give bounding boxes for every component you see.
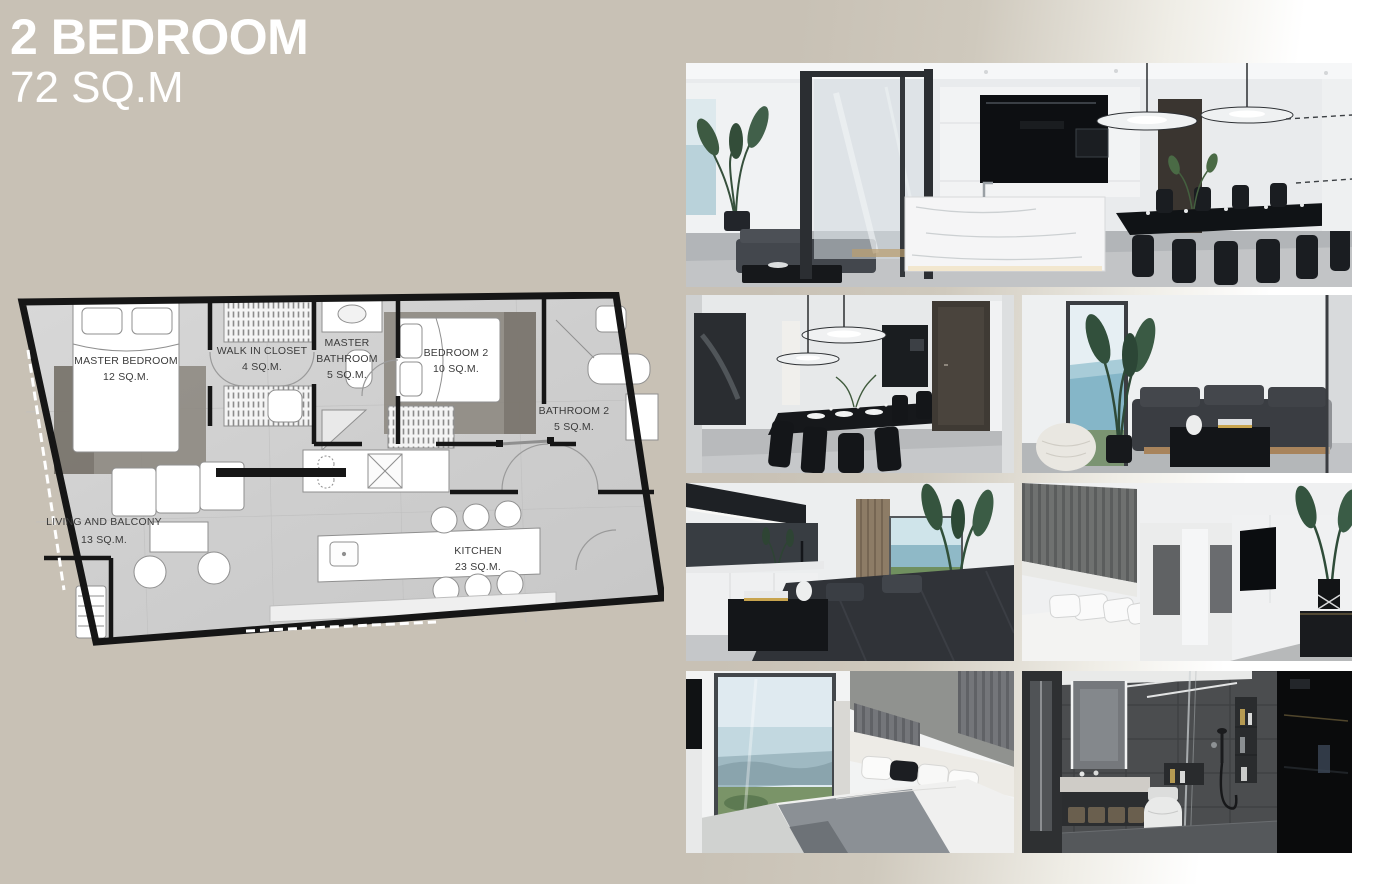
photo-kitchen-dining bbox=[686, 63, 1352, 287]
hood bbox=[1020, 121, 1064, 129]
coffee-table bbox=[742, 265, 842, 283]
room-area: 10 SQ.M. bbox=[433, 363, 479, 375]
render-kitchen-dining bbox=[686, 63, 1352, 287]
render-living-balcony bbox=[686, 483, 1014, 661]
room-area: 4 SQ.M. bbox=[242, 361, 282, 373]
room-label: LIVING AND BALCONY bbox=[46, 516, 162, 528]
photo-bedroom-tv bbox=[1022, 483, 1352, 661]
stool-2 bbox=[198, 552, 230, 584]
photo-dining-area bbox=[686, 295, 1014, 473]
kitchen-niche bbox=[882, 325, 928, 387]
room-label: MASTER bbox=[325, 337, 370, 349]
oven bbox=[910, 339, 924, 351]
tray bbox=[768, 262, 788, 268]
floor-plan-drawing: MASTER BEDROOM 12 SQ.M. WALK IN CLOSET 4… bbox=[16, 292, 664, 648]
pouf bbox=[1036, 423, 1096, 471]
column bbox=[1182, 529, 1208, 645]
sofa-cushion bbox=[740, 229, 804, 243]
render-bathroom bbox=[1022, 671, 1352, 853]
tv-wall bbox=[216, 468, 346, 477]
door-1 bbox=[1153, 545, 1180, 615]
room-label: BEDROOM 2 bbox=[424, 347, 489, 359]
books bbox=[1218, 419, 1252, 425]
vase bbox=[796, 581, 812, 601]
room-label: BATHROOM 2 bbox=[539, 405, 610, 417]
floor-plan: MASTER BEDROOM 12 SQ.M. WALK IN CLOSET 4… bbox=[16, 292, 664, 648]
room-area: 23 SQ.M. bbox=[455, 561, 501, 573]
room-label: MASTER BEDROOM bbox=[74, 355, 178, 367]
wardrobe-top bbox=[224, 298, 312, 342]
room-area: 13 SQ.M. bbox=[81, 534, 127, 546]
right-wall bbox=[1322, 79, 1352, 231]
tv bbox=[1240, 527, 1276, 591]
right-edge bbox=[1002, 295, 1014, 473]
room-label-2: BATHROOM bbox=[316, 353, 378, 365]
render-living-sea bbox=[1022, 295, 1352, 473]
bathtub bbox=[588, 354, 650, 384]
console bbox=[1300, 611, 1352, 657]
page-subtitle: 72 SQ.M bbox=[10, 66, 308, 110]
glass-cup bbox=[1080, 772, 1085, 777]
rug-patch-2 bbox=[504, 312, 536, 434]
room-label: KITCHEN bbox=[454, 545, 502, 557]
room-area: 12 SQ.M. bbox=[103, 371, 149, 383]
photo-bedroom-view bbox=[686, 671, 1014, 853]
mirror bbox=[1072, 681, 1126, 769]
photo-bathroom bbox=[1022, 671, 1352, 853]
render-dining-area bbox=[686, 295, 1014, 473]
tv-sliver bbox=[686, 679, 702, 749]
basin bbox=[338, 305, 366, 323]
closet-stool bbox=[268, 390, 302, 422]
cabinet-sliver bbox=[686, 749, 702, 853]
mixer bbox=[1211, 742, 1217, 748]
vanity bbox=[1060, 771, 1150, 827]
room-area: 5 SQ.M. bbox=[327, 369, 367, 381]
bedroom-2-bed bbox=[396, 318, 500, 402]
door bbox=[932, 301, 990, 431]
backsplash bbox=[686, 523, 818, 569]
photo-living-sea-view bbox=[1022, 295, 1352, 473]
title-block: 2 BEDROOM 72 SQ.M bbox=[10, 12, 308, 110]
artwork bbox=[694, 313, 746, 425]
brochure-page: { "page": { "background_color": "#c8c1b5… bbox=[0, 0, 1376, 884]
glass-partition bbox=[1327, 295, 1352, 473]
render-bedroom-view bbox=[686, 671, 1014, 853]
sofa-pillow bbox=[882, 575, 922, 593]
oven bbox=[1076, 129, 1108, 157]
books bbox=[744, 591, 788, 598]
reflection bbox=[1318, 745, 1330, 773]
vase bbox=[1186, 415, 1202, 435]
render-bedroom-tv bbox=[1022, 483, 1352, 661]
black-wardrobe bbox=[1277, 671, 1352, 853]
page-title: 2 BEDROOM bbox=[10, 12, 308, 62]
sofa-pillow-2 bbox=[826, 583, 864, 601]
door-2 bbox=[1210, 545, 1232, 613]
stool-1 bbox=[134, 556, 166, 588]
ceiling bbox=[686, 63, 1352, 79]
photo-living-balcony bbox=[686, 483, 1014, 661]
shelf-glint bbox=[1290, 679, 1310, 689]
room-area: 5 SQ.M. bbox=[554, 421, 594, 433]
door-frame bbox=[1022, 671, 1062, 853]
door-jamb bbox=[990, 301, 1002, 431]
room-label: WALK IN CLOSET bbox=[217, 345, 308, 357]
